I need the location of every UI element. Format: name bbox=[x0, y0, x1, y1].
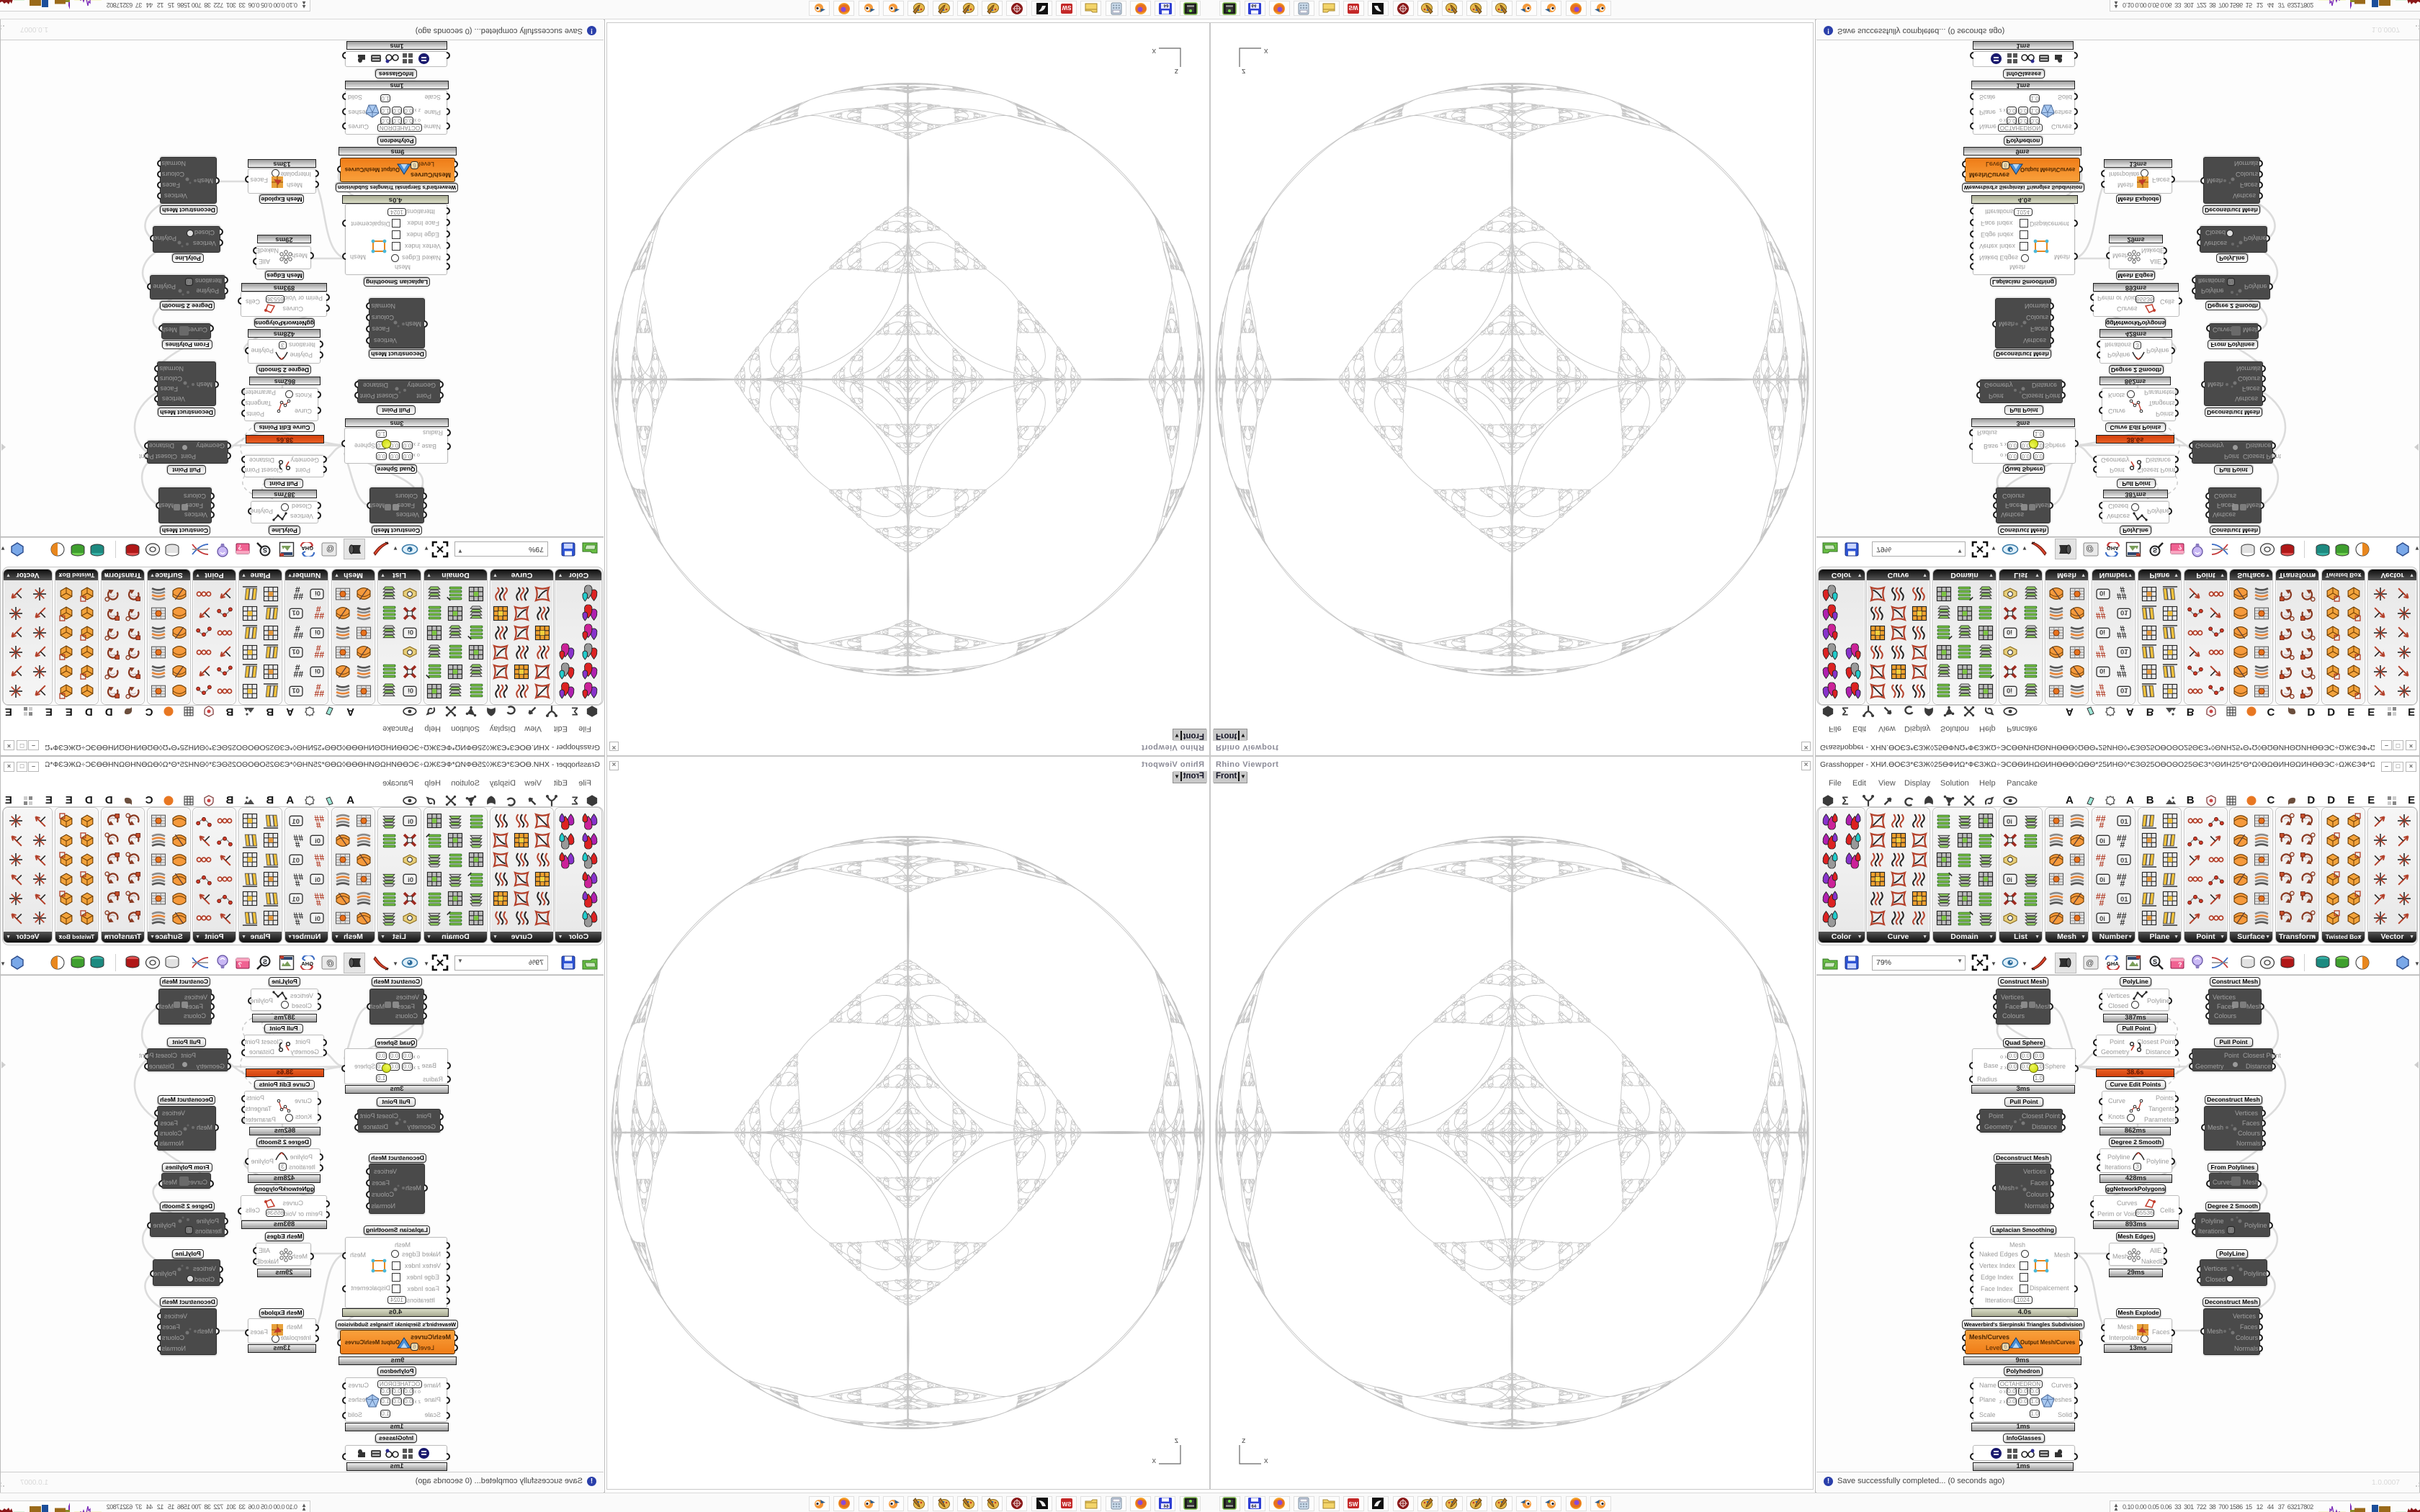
svg-text:0i: 0i bbox=[408, 876, 413, 884]
svg-text:#: # bbox=[2099, 820, 2104, 829]
svg-text:GHA: GHA bbox=[2107, 545, 2119, 552]
svg-text:01: 01 bbox=[2120, 647, 2128, 655]
svg-text:?: ? bbox=[2178, 961, 2182, 968]
svg-text:SW: SW bbox=[1062, 1501, 1071, 1508]
svg-text:x: x bbox=[1152, 1457, 1156, 1465]
svg-text:0i: 0i bbox=[315, 589, 321, 597]
svg-text:@: @ bbox=[326, 544, 334, 553]
svg-text:?: ? bbox=[238, 544, 243, 551]
svg-text:#: # bbox=[2099, 859, 2104, 868]
svg-text:#: # bbox=[2099, 605, 2104, 614]
svg-text:01: 01 bbox=[292, 608, 300, 616]
svg-text:#: # bbox=[295, 917, 300, 927]
svg-text:01: 01 bbox=[292, 896, 300, 904]
svg-text:#: # bbox=[2120, 840, 2125, 849]
svg-text:01: 01 bbox=[292, 818, 300, 826]
svg-text:#: # bbox=[316, 898, 321, 907]
svg-text:#: # bbox=[295, 624, 300, 634]
svg-text:z: z bbox=[1242, 1436, 1246, 1445]
svg-text:z: z bbox=[1175, 1436, 1179, 1445]
svg-text:0i: 0i bbox=[2007, 628, 2012, 636]
svg-text:#: # bbox=[2120, 585, 2125, 595]
svg-text:#: # bbox=[2120, 663, 2125, 672]
svg-text:64: 64 bbox=[1163, 1505, 1168, 1509]
svg-text:01: 01 bbox=[2120, 896, 2128, 904]
svg-text:0i: 0i bbox=[315, 628, 321, 636]
svg-text:#: # bbox=[2099, 683, 2104, 692]
svg-text:?: ? bbox=[2178, 544, 2182, 551]
svg-text:0i: 0i bbox=[2099, 628, 2105, 636]
svg-text:01: 01 bbox=[2120, 818, 2128, 826]
svg-text:z: z bbox=[1175, 67, 1179, 76]
svg-text:z: z bbox=[1242, 67, 1246, 76]
svg-text:01: 01 bbox=[2120, 686, 2128, 694]
svg-text:01: 01 bbox=[2120, 608, 2128, 616]
svg-text:SW: SW bbox=[1348, 4, 1358, 11]
svg-text:#: # bbox=[316, 605, 321, 614]
svg-text:?: ? bbox=[238, 961, 243, 968]
svg-text:S: S bbox=[263, 546, 267, 554]
svg-text:0i: 0i bbox=[315, 667, 321, 675]
svg-text:0i: 0i bbox=[2007, 686, 2012, 694]
svg-text:SW: SW bbox=[1348, 1501, 1358, 1508]
svg-text:0i: 0i bbox=[2099, 589, 2105, 597]
svg-text:#: # bbox=[2120, 878, 2125, 888]
svg-text:0i: 0i bbox=[408, 686, 413, 694]
svg-text:#: # bbox=[316, 644, 321, 653]
svg-text:S: S bbox=[2153, 546, 2157, 554]
svg-text:01: 01 bbox=[292, 686, 300, 694]
svg-text:#: # bbox=[295, 878, 300, 888]
svg-text:64: 64 bbox=[1251, 3, 1256, 7]
svg-text:0i: 0i bbox=[2099, 837, 2105, 845]
svg-text:S: S bbox=[263, 958, 267, 966]
svg-text:64: 64 bbox=[1163, 3, 1168, 7]
svg-text:0i: 0i bbox=[315, 915, 321, 923]
svg-text:GHA: GHA bbox=[2107, 960, 2119, 967]
svg-text:GHA: GHA bbox=[301, 545, 313, 552]
svg-text:SW: SW bbox=[1062, 4, 1071, 11]
svg-text:GHA: GHA bbox=[301, 960, 313, 967]
svg-text:0i: 0i bbox=[2099, 876, 2105, 884]
svg-text:64: 64 bbox=[1251, 1505, 1256, 1509]
svg-text:#: # bbox=[316, 820, 321, 829]
svg-text:0i: 0i bbox=[408, 818, 413, 826]
svg-text:0i: 0i bbox=[2099, 915, 2105, 923]
svg-text:@: @ bbox=[326, 959, 334, 968]
svg-text:#: # bbox=[295, 585, 300, 595]
svg-text:#: # bbox=[2099, 898, 2104, 907]
svg-text:#: # bbox=[2099, 644, 2104, 653]
svg-text:0i: 0i bbox=[408, 628, 413, 636]
svg-text:x: x bbox=[1264, 1457, 1268, 1465]
svg-text:0i: 0i bbox=[2007, 818, 2012, 826]
svg-text:#: # bbox=[2120, 917, 2125, 927]
svg-text:x: x bbox=[1264, 47, 1268, 55]
svg-text:@: @ bbox=[2086, 544, 2094, 553]
svg-text:01: 01 bbox=[292, 857, 300, 865]
svg-text:S: S bbox=[2153, 958, 2157, 966]
svg-text:#: # bbox=[2120, 624, 2125, 634]
svg-text:@: @ bbox=[2086, 959, 2094, 968]
svg-text:01: 01 bbox=[292, 647, 300, 655]
svg-text:0i: 0i bbox=[315, 876, 321, 884]
svg-text:x: x bbox=[1152, 47, 1156, 55]
svg-text:#: # bbox=[295, 663, 300, 672]
svg-text:0i: 0i bbox=[2007, 876, 2012, 884]
svg-text:0i: 0i bbox=[315, 837, 321, 845]
svg-text:#: # bbox=[295, 840, 300, 849]
svg-text:#: # bbox=[316, 683, 321, 692]
svg-text:0i: 0i bbox=[2099, 667, 2105, 675]
svg-text:01: 01 bbox=[2120, 857, 2128, 865]
svg-text:#: # bbox=[316, 859, 321, 868]
